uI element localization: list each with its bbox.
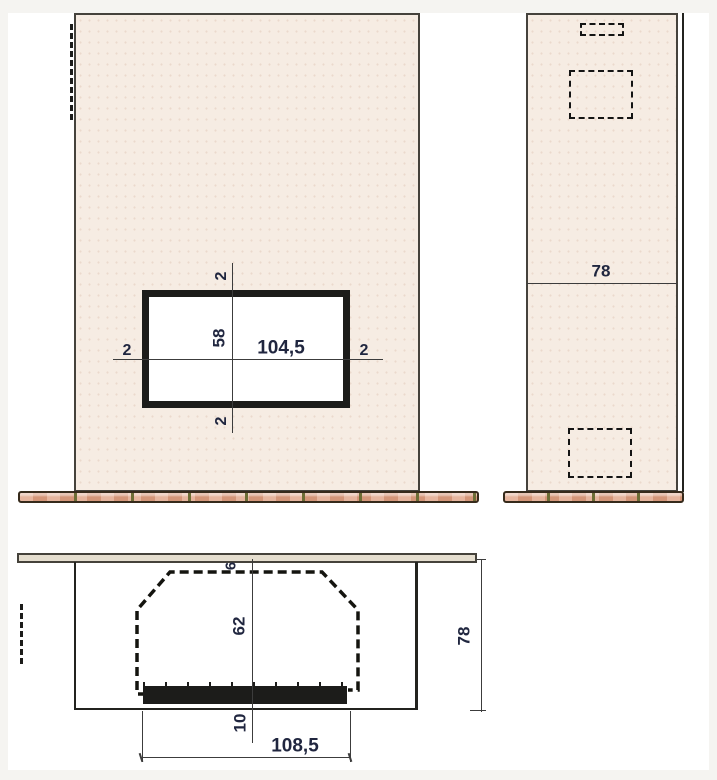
side-depth-dim-line — [527, 283, 677, 284]
front-hidden-edge-line — [70, 24, 73, 120]
side-dim-depth: 78 — [592, 263, 611, 280]
firebox-opening-frame — [142, 290, 350, 408]
technical-drawing-canvas: 2 2 2 2 58 104,5 78 6 — [0, 0, 717, 780]
plan-dim-chamber-depth: 62 — [231, 617, 248, 636]
plan-left-wall-line — [74, 562, 76, 710]
front-dim-right-offset: 2 — [360, 343, 369, 359]
plan-bottom-line — [74, 708, 418, 710]
plan-top-plate — [17, 553, 477, 563]
plan-dim-chamber-width: 108,5 — [271, 737, 319, 756]
plan-centerline — [252, 559, 253, 743]
dim-line-chamber-width — [142, 757, 351, 758]
dim-extension-bottom — [470, 710, 486, 711]
plan-frame-bar — [143, 686, 347, 704]
side-hidden-vent-upper — [569, 70, 633, 119]
front-dim-opening-width: 104,5 — [257, 339, 305, 358]
front-dim-top-offset: 2 — [214, 272, 230, 281]
front-dim-left-offset: 2 — [123, 343, 132, 359]
plan-hidden-left-edge — [20, 604, 23, 664]
front-dim-opening-height: 58 — [211, 329, 228, 348]
side-hearth-base — [503, 491, 684, 503]
tile-separators — [20, 493, 477, 501]
side-hidden-vent-top — [580, 23, 624, 36]
front-dim-bottom-offset: 2 — [214, 417, 230, 426]
dim-line-overall-depth — [481, 559, 482, 712]
plan-dim-rear-gap: 6 — [224, 562, 239, 570]
plan-right-wall-line — [415, 562, 418, 710]
dim-extension-left — [142, 711, 143, 762]
side-hidden-vent-lower — [568, 428, 632, 478]
plan-dim-overall-depth: 78 — [456, 627, 473, 646]
front-hearth-base — [18, 491, 479, 503]
front-vertical-dim-line — [232, 263, 233, 433]
side-panel-edge-line — [682, 13, 684, 492]
front-horizontal-dim-line — [113, 359, 383, 360]
front-panel — [74, 13, 420, 492]
tile-separators — [505, 493, 682, 501]
plan-dim-front-depth: 10 — [232, 714, 249, 733]
